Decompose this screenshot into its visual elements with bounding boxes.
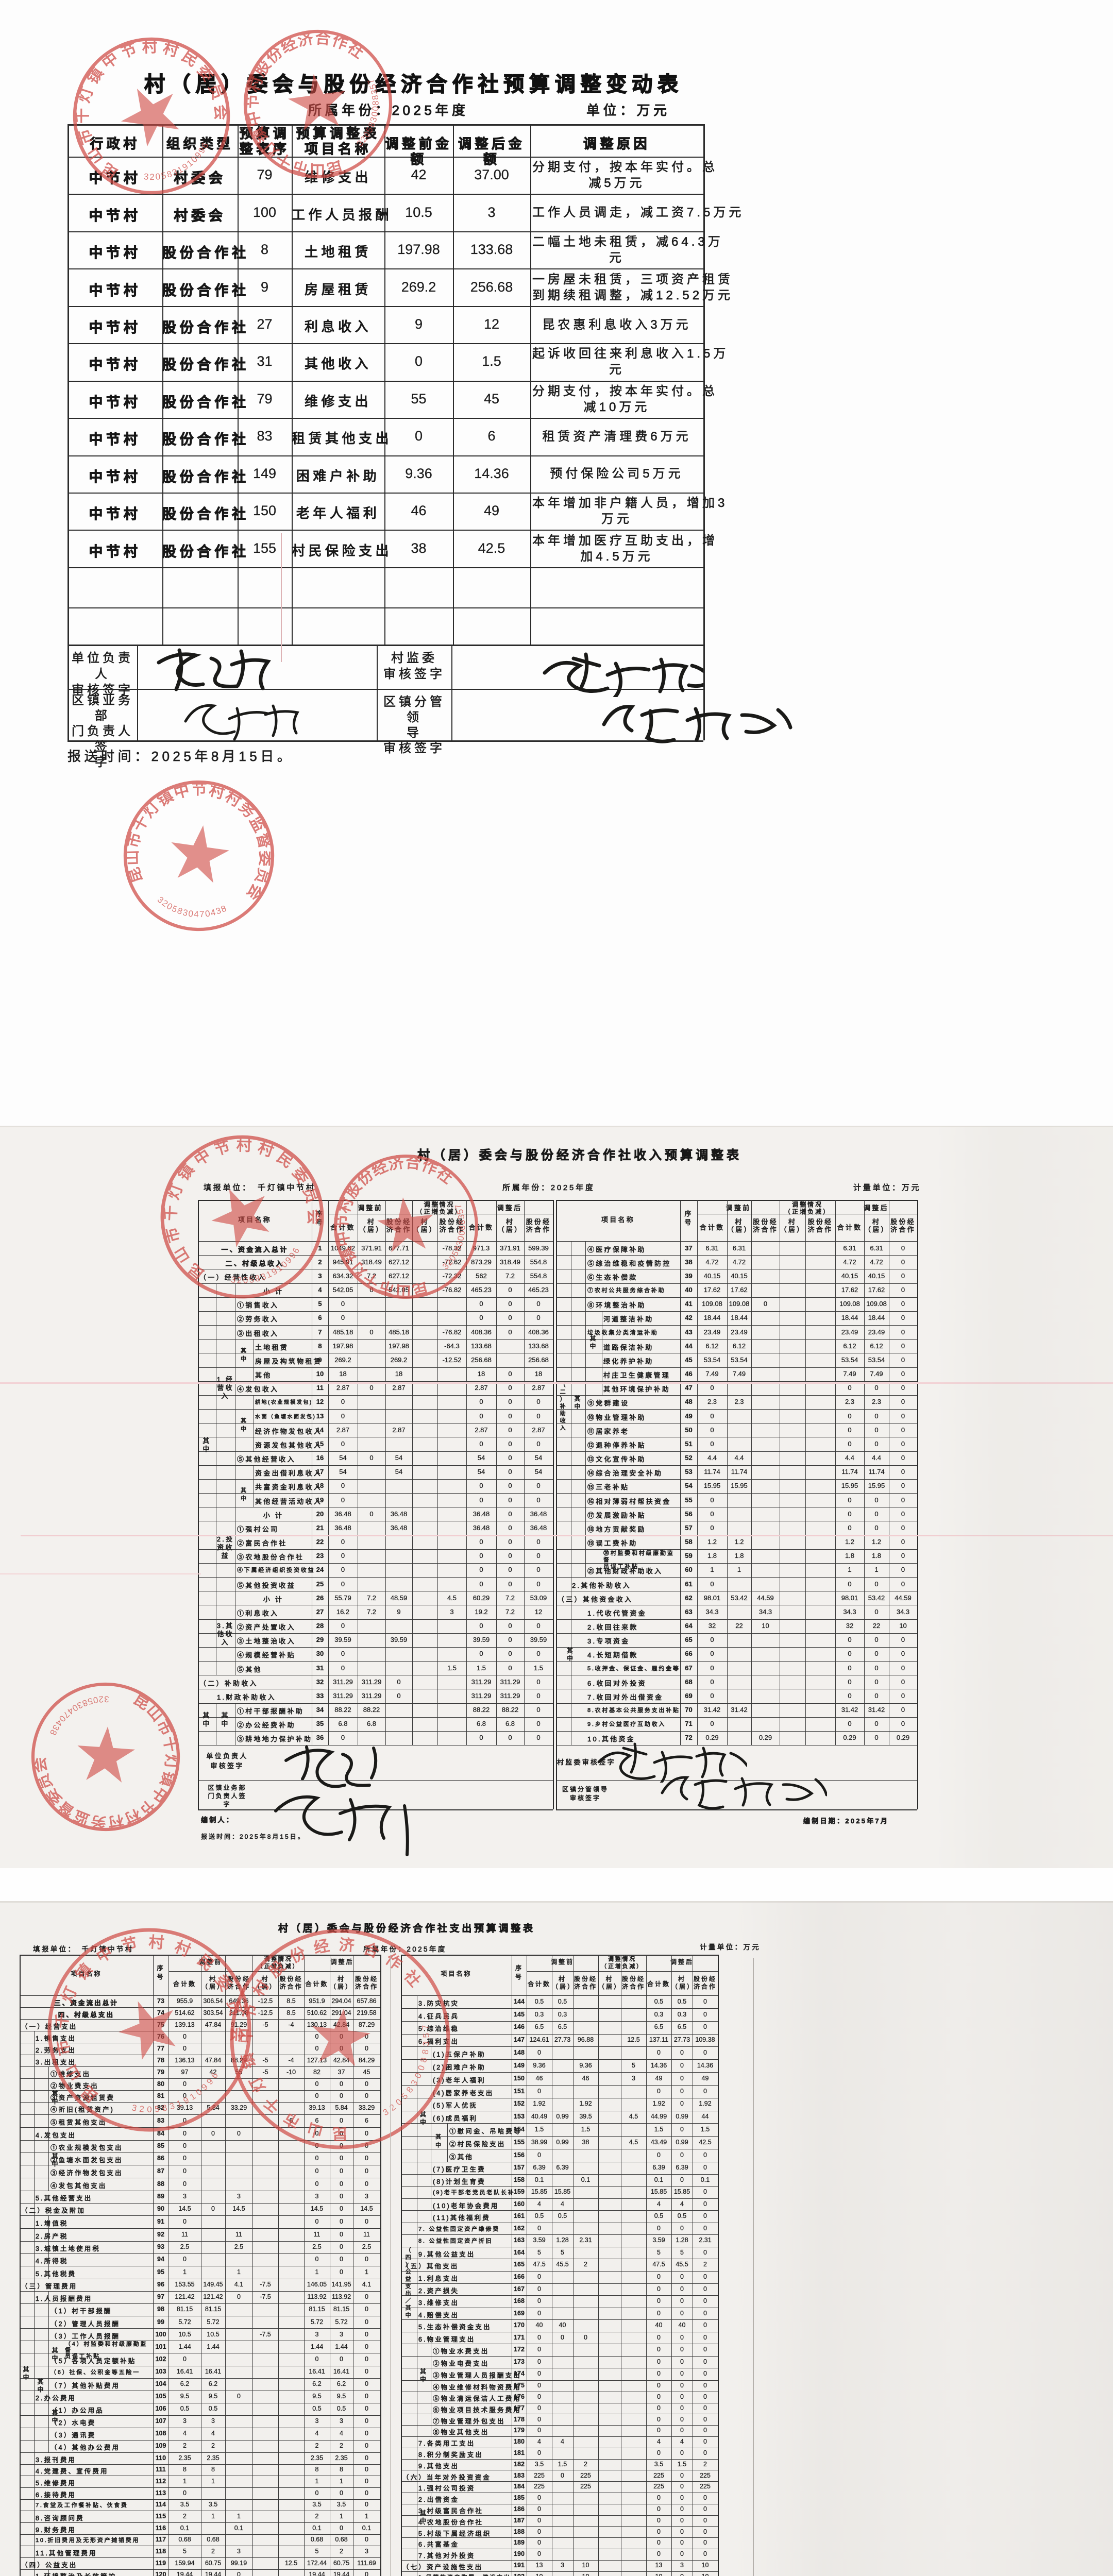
svg-text:山: 山 (124, 850, 141, 866)
svg-text:中: 中 (172, 782, 192, 802)
svg-text:2: 2 (149, 172, 155, 182)
svg-text:会: 会 (211, 104, 229, 121)
svg-text:昆: 昆 (125, 865, 146, 885)
svg-text:0: 0 (369, 111, 380, 117)
svg-text:节: 节 (244, 93, 261, 109)
svg-text:会: 会 (243, 881, 266, 903)
svg-text:节: 节 (192, 781, 207, 798)
svg-text:山: 山 (84, 144, 107, 167)
svg-text:4: 4 (194, 909, 199, 919)
svg-text:7: 7 (199, 909, 205, 919)
svg-text:委: 委 (194, 62, 216, 84)
svg-text:委: 委 (256, 851, 274, 867)
svg-text:村: 村 (161, 40, 180, 60)
svg-text:千: 千 (74, 108, 91, 124)
svg-text:昆: 昆 (99, 159, 122, 182)
svg-text:0: 0 (370, 106, 381, 111)
svg-text:0: 0 (155, 172, 161, 182)
svg-text:合: 合 (314, 29, 331, 48)
svg-text:0: 0 (188, 909, 194, 919)
svg-text:3: 3 (143, 172, 149, 182)
svg-text:8: 8 (370, 100, 380, 106)
svg-text:民: 民 (179, 47, 201, 70)
svg-text:村: 村 (142, 39, 158, 56)
svg-text:山: 山 (310, 161, 325, 178)
svg-text:中: 中 (99, 49, 122, 72)
svg-text:镇: 镇 (84, 65, 107, 88)
